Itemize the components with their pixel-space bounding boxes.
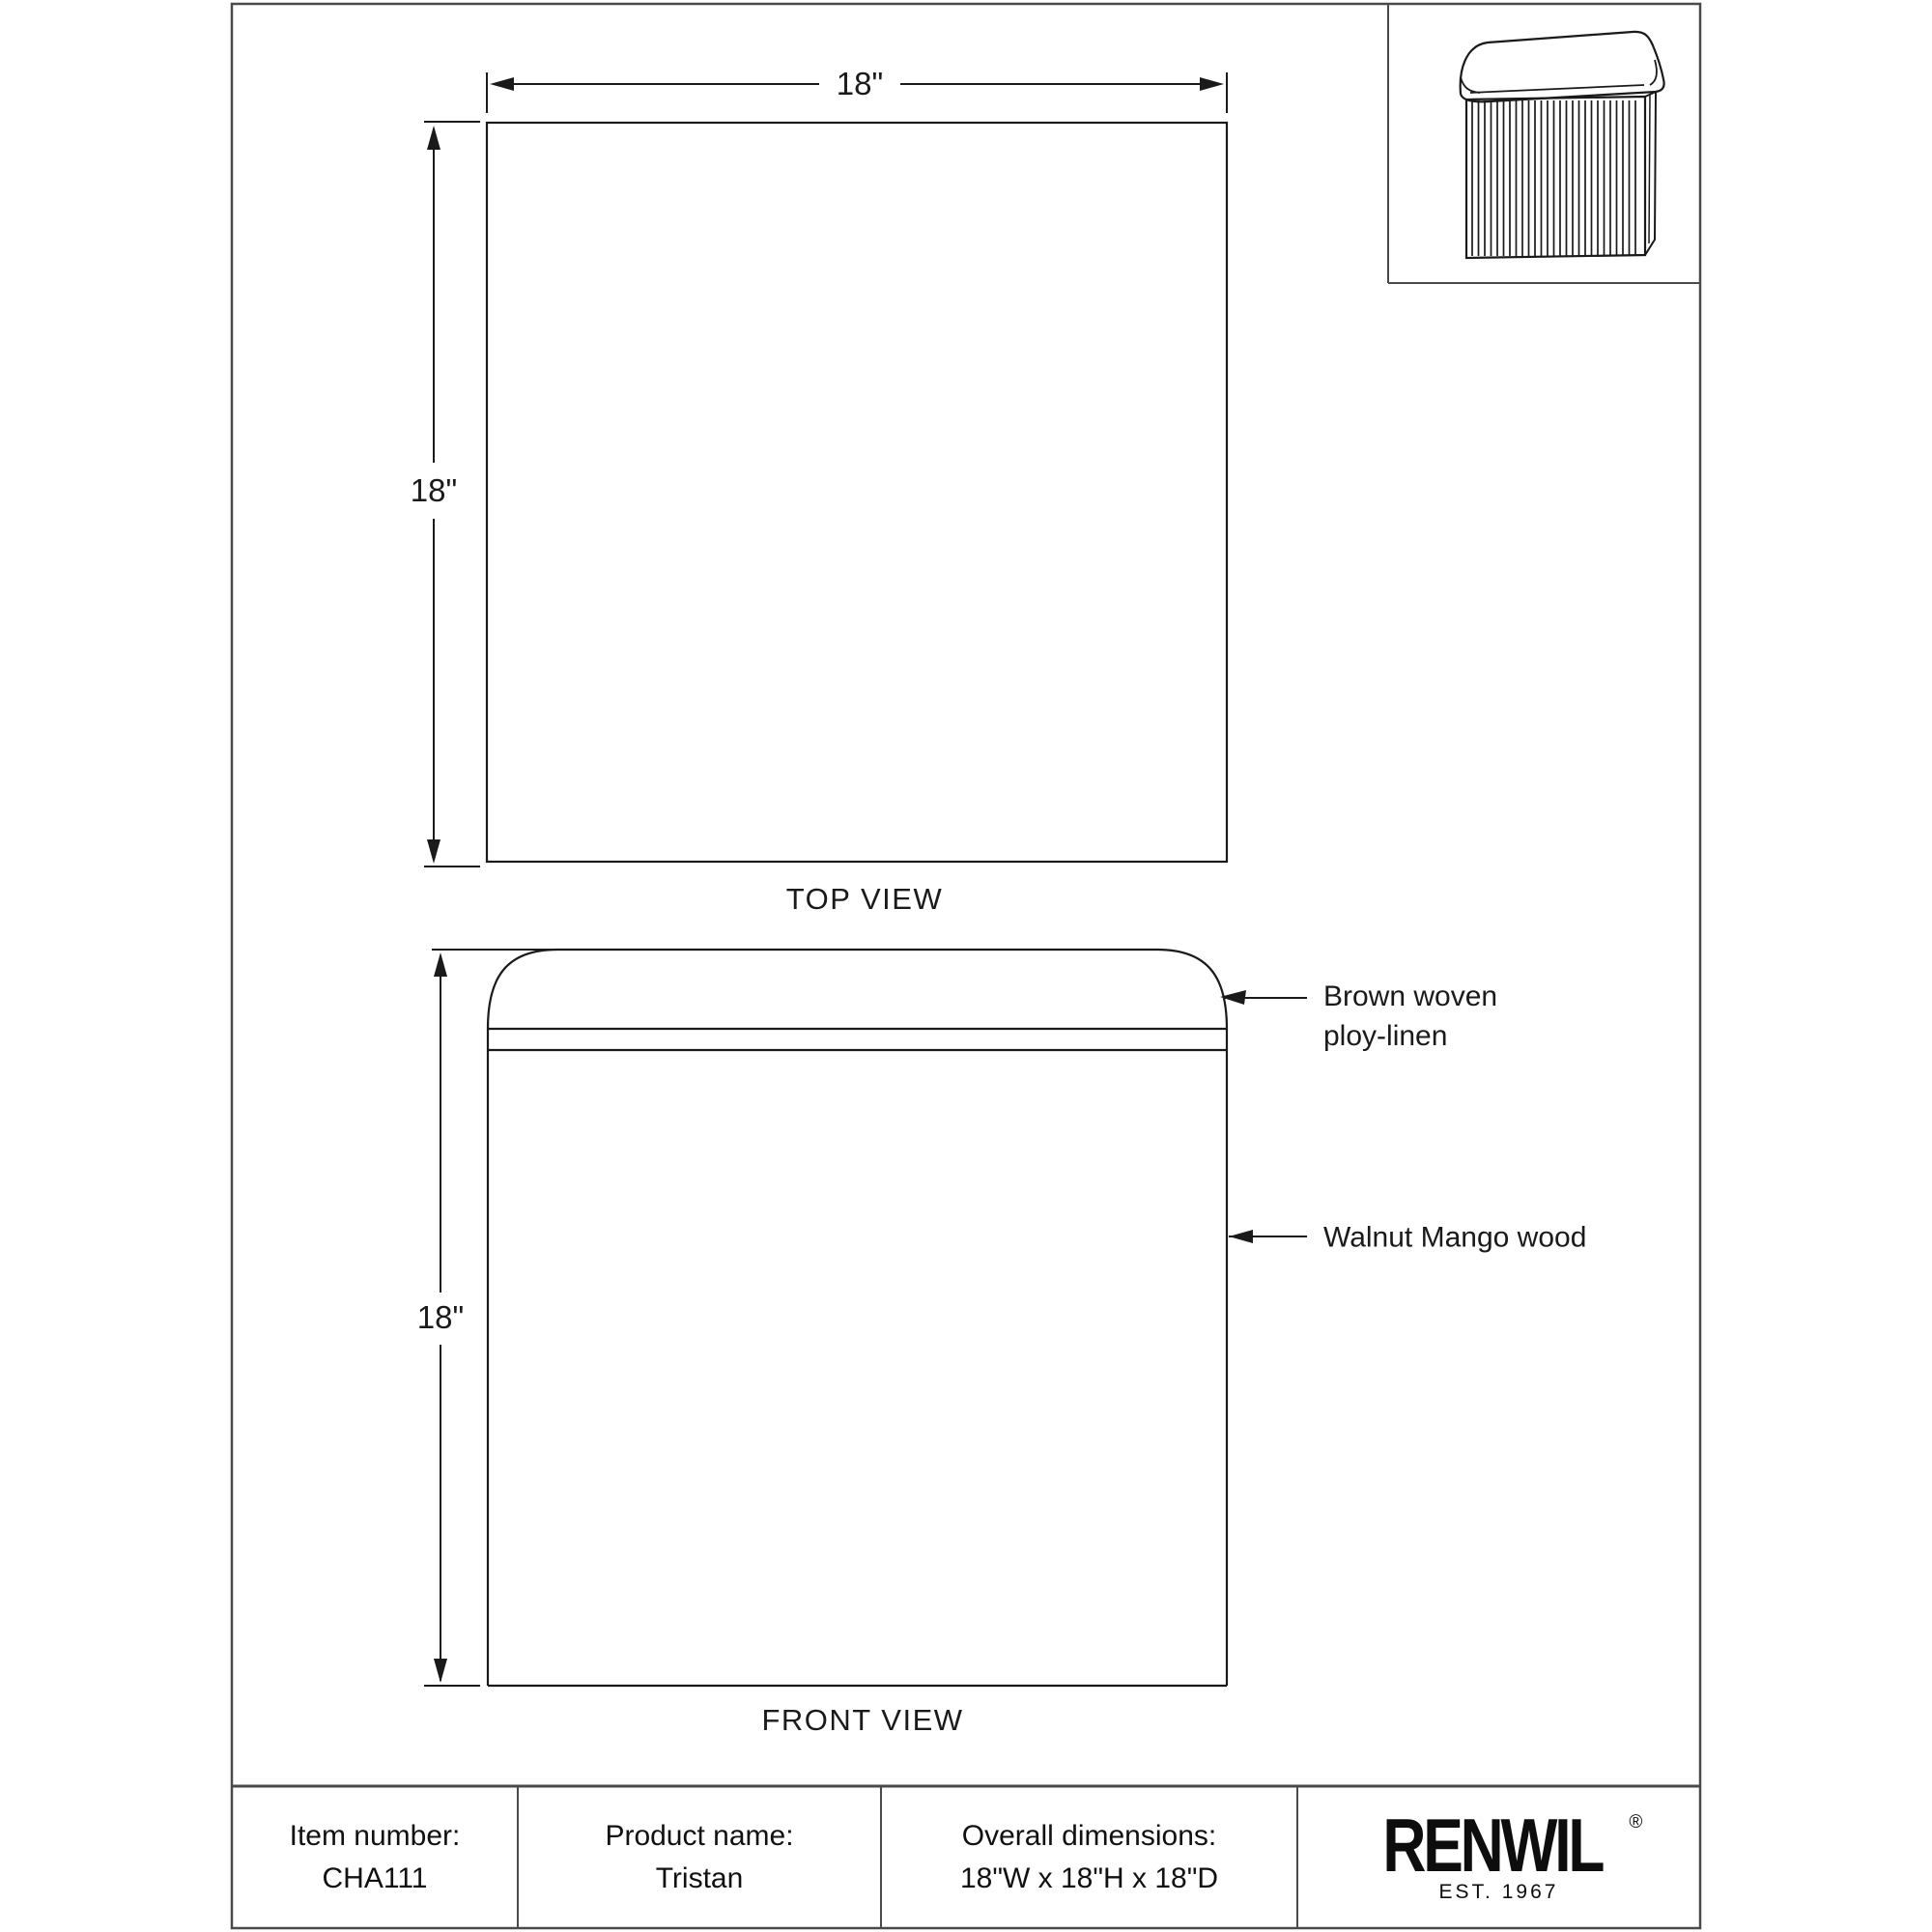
slab-right-corner-arc (1650, 60, 1657, 85)
brand-name: RENWIL (1382, 1811, 1602, 1879)
arrowhead-down (427, 839, 440, 864)
cushion-material-line2: ploy-linen (1323, 1016, 1497, 1056)
top-view-width-label: 18" (830, 66, 890, 102)
front-view-height-label: 18" (411, 1299, 470, 1336)
overall-dimensions-label: Overall dimensions: (962, 1815, 1216, 1858)
sheet-border (232, 4, 1700, 1928)
cushion-material-annotation: Brown woven ploy-linen (1323, 977, 1497, 1056)
item-number-label: Item number: (290, 1815, 461, 1858)
top-view-outline (487, 123, 1227, 862)
side-face-line (1649, 94, 1650, 243)
wood-material-annotation: Walnut Mango wood (1323, 1218, 1586, 1258)
top-view-drawing (487, 123, 1227, 862)
footer-dimensions-cell: Overall dimensions: 18"W x 18"H x 18"D (881, 1786, 1297, 1928)
cushion-material-line1: Brown woven (1323, 977, 1497, 1016)
arrowhead-up (427, 126, 440, 150)
overall-dimensions-value: 18"W x 18"H x 18"D (960, 1858, 1218, 1900)
sheet-frame (232, 4, 1700, 1928)
brand-logo: RENWIL ® (1355, 1811, 1643, 1879)
annotation-leaders (1220, 990, 1307, 1243)
arrowhead-right (1200, 77, 1224, 91)
front-view-title: FRONT VIEW (761, 1703, 963, 1738)
top-view-height-label: 18" (404, 472, 464, 509)
fluting-lines (1472, 100, 1635, 256)
arrowhead-left (490, 77, 514, 91)
ottoman-thumbnail (1461, 32, 1664, 258)
arrowhead-up (434, 952, 447, 977)
wood-leader-arrowhead (1229, 1230, 1253, 1243)
arrowhead-down (434, 1659, 447, 1683)
technical-drawing-canvas (0, 0, 1932, 1932)
product-name-label: Product name: (605, 1815, 793, 1858)
registered-trademark-icon: ® (1629, 1813, 1642, 1832)
slab-seam (1470, 85, 1644, 93)
top-view-title: TOP VIEW (786, 882, 943, 917)
product-name-value: Tristan (656, 1858, 744, 1900)
footer-item-number-cell: Item number: CHA111 (232, 1786, 518, 1928)
slab-left-corner-arc (1461, 77, 1480, 93)
footer-brand-cell: RENWIL ® EST. 1967 (1297, 1786, 1700, 1928)
item-number-value: CHA111 (323, 1858, 428, 1900)
front-view-drawing (488, 950, 1227, 1686)
footer-product-name-cell: Product name: Tristan (518, 1786, 881, 1928)
cushion-top-outline (488, 950, 1227, 1029)
front-face-outline (1466, 97, 1645, 258)
